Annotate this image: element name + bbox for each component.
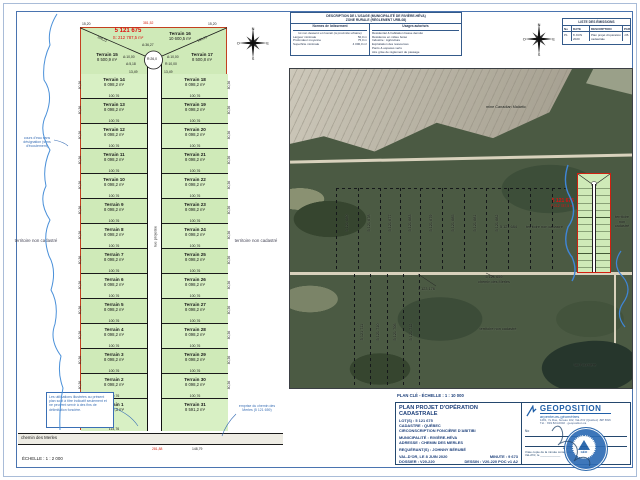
surveyor-stamp: GÉO — [564, 427, 608, 471]
lot-terrain-6: Terrain 68 098,2 m²100,7680,36 — [81, 274, 147, 299]
lot-depth-dim: 80,36 — [227, 374, 231, 396]
lot-area: 8 098,2 m² — [162, 132, 228, 137]
lot-terrain-12: Terrain 128 098,2 m²100,7680,36 — [81, 124, 147, 149]
map-lot-label: 5 121 680 — [345, 209, 349, 237]
revision-header-cell: DATE — [571, 26, 589, 31]
map-lot-label: 5 121 681 — [473, 209, 477, 237]
road-label: chemin des Merles — [21, 435, 57, 440]
map-road-label: 5 121 659 chemin des Merles — [466, 275, 522, 284]
svg-text:S: S — [538, 53, 541, 56]
map-main-lot-label: 5 121 675 S:212 787,5 m² — [534, 198, 574, 208]
cadastral-line-vertical — [400, 188, 401, 272]
dim-arc-left: A:10,00 — [123, 55, 135, 59]
territory-label-left: territoire non cadastré — [8, 238, 64, 243]
cadastral-line-vertical — [387, 274, 388, 389]
plan-note-box: Les utilisations illustrées au présent p… — [46, 392, 114, 428]
lot-width-dim: 100,76 — [162, 219, 228, 223]
lot-terrain-10: Terrain 108 098,2 m²100,7680,36 — [81, 174, 147, 199]
lot-width-dim: 100,76 — [81, 369, 147, 373]
lot-depth-dim: 80,36 — [78, 249, 82, 271]
lot-name: Terrain 29 — [162, 349, 228, 357]
lot-name: Terrain 12 — [81, 124, 147, 132]
title-block: PLAN PROJET D'OPÉRATION CADASTRALE LOT(S… — [395, 402, 631, 465]
lot-area: 8 098,2 m² — [162, 182, 228, 187]
lot-name: Terrain 24 — [162, 224, 228, 232]
cadastral-plan-sheet: territoire non cadastré territoire non c… — [0, 0, 640, 480]
lot-area: 8 591,2 m² — [162, 407, 228, 412]
lot-area: 8 098,2 m² — [162, 332, 228, 337]
lot-width-dim: 100,76 — [162, 169, 228, 173]
lot-name: Terrain 20 — [162, 124, 228, 132]
projected-street: rue projetée — [147, 64, 162, 431]
stamp-triangle-icon — [578, 440, 590, 450]
cadastral-line-horizontal — [336, 188, 566, 189]
revision-headers: NoDATEDESCRIPTIONPAR — [563, 26, 630, 31]
title-block-firm: GEOPOSITION arpenteurs-géomètres 1281, 7… — [522, 403, 630, 464]
map-lot-176: 5 123 176 — [418, 287, 435, 291]
dim-arc-right: A:10,00 — [167, 55, 179, 59]
lot-terrain-27: Terrain 278 098,2 m²100,7680,36 — [162, 299, 228, 324]
lot-name: Terrain 19 — [162, 99, 228, 107]
cadastral-line-vertical — [486, 188, 487, 272]
lot-width-dim: 100,76 — [162, 319, 228, 323]
map-mine-label: mine Canadian Malartic — [486, 105, 526, 109]
lot-name: Terrain 7 — [81, 249, 147, 257]
cadastral-line-vertical — [358, 188, 359, 272]
scale-label-left: ÉCHELLE : 1 : 2 000 — [22, 456, 63, 461]
firm-address-2: Tél. : 819 824-0002 · geoposition.ca — [540, 422, 611, 425]
svg-text:N: N — [538, 23, 541, 27]
zoning-usage-row: Aire grise de règlement de passage — [372, 51, 459, 55]
dim-arc-top: A:36,27 — [142, 43, 154, 47]
lot-depth-dim: 80,36 — [78, 274, 82, 296]
lot-terrain-16: Terrain 16 10 600,5 m² — [159, 31, 201, 41]
zoning-col-usages: Usages autorisés Résidentiel & habitatio… — [369, 24, 461, 56]
revision-cell: 8 JUIN 2020 — [571, 32, 589, 41]
lot-width-dim: 100,76 — [162, 94, 228, 98]
lot-terrain-23: Terrain 238 098,2 m²100,7680,36 — [162, 199, 228, 224]
cadastral-line-vertical — [464, 188, 465, 272]
lot-terrain-18: Terrain 188 098,2 m²100,7680,36 — [162, 74, 228, 99]
lot-area: 8 098,2 m² — [162, 207, 228, 212]
map-lot-label: 5 121 677 — [388, 209, 392, 237]
lot-depth-dim: 80,36 — [78, 349, 82, 371]
field-adresse: ADRESSE : CHEMIN DES MERLES — [399, 440, 518, 445]
zoning-title: DESCRIPTION DE L'USAGE (MUNICIPALITÉ DE … — [291, 13, 461, 24]
map-lot-label: 5 121 683 — [408, 209, 412, 237]
lot-area: 8 098,2 m² — [81, 182, 147, 187]
lot-width-dim: 100,76 — [162, 244, 228, 248]
subdivision-block: rue projetée 5 121 675 S: 212 787,5 m² T… — [80, 27, 227, 430]
lot-area: 8 098,2 m² — [162, 107, 228, 112]
revision-row: P18 JUIN 2020Plan projet d'opération cad… — [563, 31, 630, 41]
lot-terrain-13: Terrain 138 098,2 m²100,7680,36 — [81, 99, 147, 124]
lot-terrain-20: Terrain 208 098,2 m²100,7680,36 — [162, 124, 228, 149]
lot-width-dim: 100,76 — [81, 244, 147, 248]
territory-label-right: territoire non cadastré — [228, 238, 284, 243]
map-road-upper — [290, 153, 633, 163]
dim-road-red: 281,88 — [152, 447, 162, 451]
field-dessin: DESSIN : V20-220 POC v1 A2 — [464, 459, 517, 464]
revision-header-cell: DESCRIPTION — [589, 26, 622, 31]
cadastral-line-vertical — [354, 274, 355, 389]
lot-depth-dim: 80,36 — [227, 174, 231, 196]
cadastral-line-vertical — [442, 188, 443, 272]
street-label: rue projetée — [153, 214, 158, 260]
road-chemin-des-merles — [18, 433, 283, 445]
map-lot-label: 5 121 682 — [495, 209, 499, 237]
map-territory-right-3: cadastré — [612, 224, 632, 229]
lot-name: Terrain 13 — [81, 99, 147, 107]
lot-depth-dim: 80,36 — [78, 299, 82, 321]
zoning-norm-row: Superficie minimale4 000,0 m² — [293, 43, 367, 47]
lot-depth-dim: 80,36 — [78, 224, 82, 246]
dim-street-right: 13,49 — [164, 70, 173, 74]
lot-terrain-7: Terrain 78 098,2 m²100,7680,36 — [81, 249, 147, 274]
lot-area: 8 098,2 m² — [81, 307, 147, 312]
svg-text:E: E — [266, 42, 269, 46]
lot-depth-dim: 80,36 — [78, 99, 82, 121]
field-dossier: DOSSIER : V20-220 — [399, 459, 435, 464]
lot-width-dim: 100,76 — [81, 219, 147, 223]
map-main-lot-area: S:212 787,5 m² — [534, 204, 574, 208]
lot-name: Terrain 2 — [81, 374, 147, 382]
lot-width-dim: 100,76 — [81, 119, 147, 123]
lot-name: Terrain 18 — [162, 74, 228, 82]
stamp-text: GÉO — [573, 450, 595, 454]
zoning-col1-header: Normes de lotissement — [293, 25, 367, 31]
lot-depth-dim: 80,36 — [78, 324, 82, 346]
revision-cell: Plan projet d'opération cadastrale — [589, 32, 622, 41]
lot-depth-dim: 80,36 — [227, 349, 231, 371]
revision-cell: P1 — [563, 32, 571, 41]
zoning-norm-label: Superficie minimale — [293, 43, 319, 47]
lot-depth-dim: 80,36 — [227, 99, 231, 121]
lot-depth-dim: 80,36 — [227, 249, 231, 271]
zoning-col-norms: Normes de lotissement lot non desservi e… — [291, 24, 369, 56]
lot-depth-dim: 80,36 — [78, 124, 82, 146]
lot-terrain-26: Terrain 268 098,2 m²100,7680,36 — [162, 274, 228, 299]
lot-name: Terrain 26 — [162, 274, 228, 282]
map-lot-label: 5 121 710 — [376, 318, 380, 346]
document-title: PLAN PROJET D'OPÉRATION CADASTRALE — [399, 405, 518, 418]
dim-seg-left: A:5,18 — [126, 62, 136, 66]
lot-depth-dim: 80,36 — [227, 224, 231, 246]
lot-name: Terrain 25 — [162, 249, 228, 257]
lot-depth-dim: 80,36 — [78, 199, 82, 221]
plan-cle-label: PLAN CLÉ - ÉCHELLE : 1 : 10 000 — [397, 393, 464, 398]
lot-width-dim: 100,76 — [81, 344, 147, 348]
lot-terrain-28: Terrain 288 098,2 m²100,7680,36 — [162, 324, 228, 349]
lot-name: Terrain 27 — [162, 299, 228, 307]
lot-terrain-11: Terrain 118 098,2 m²100,7680,36 — [81, 149, 147, 174]
lot-area: 8 098,2 m² — [81, 132, 147, 137]
lot-width-dim: 100,76 — [162, 194, 228, 198]
field-requerant: REQUÉRANT(S) : JOHNNY BÉRUBÉ — [399, 447, 518, 452]
map-territory-mid: territoire non cadastré — [526, 225, 563, 229]
revision-header-cell: PAR — [622, 26, 630, 31]
lot-area: 8 098,2 m² — [81, 257, 147, 262]
lot-name: Terrain 31 — [162, 399, 228, 407]
map-lot-label: 5 121 685 — [451, 209, 455, 237]
lot-depth-dim: 80,36 — [227, 324, 231, 346]
lot-area: 8 500,8 m² — [178, 57, 226, 62]
lot-name: Terrain 14 — [81, 74, 147, 82]
lot-depth-dim: 80,36 — [227, 274, 231, 296]
lot-depth-dim: 80,36 — [227, 299, 231, 321]
lot-width-dim: 100,76 — [81, 194, 147, 198]
lot-width-dim: 100,76 — [81, 319, 147, 323]
lake-area — [539, 335, 633, 389]
map-lot-label: 5 121 712 — [409, 318, 413, 346]
lot-terrain-24: Terrain 248 098,2 m²100,7680,36 — [162, 224, 228, 249]
lot-width-dim: 100,76 — [81, 294, 147, 298]
main-lot-label: 5 121 675 S: 212 787,5 m² — [103, 28, 153, 40]
lot-width-dim: 100,76 — [81, 269, 147, 273]
dim-seg-right: R:10,00 — [165, 62, 177, 66]
title-block-info: PLAN PROJET D'OPÉRATION CADASTRALE LOT(S… — [396, 403, 522, 464]
map-lot-label: 5 121 706 — [393, 318, 397, 346]
cadastral-line-vertical — [380, 188, 381, 272]
main-lot-area: S: 212 787,5 m² — [103, 35, 153, 40]
map-territory-bottom: territoire non cadastré — [458, 327, 538, 331]
lot-terrain-9: Terrain 98 098,2 m²100,7680,36 — [81, 199, 147, 224]
dim-top-total: 381,52 — [143, 21, 153, 25]
lot-depth-dim: 80,36 — [78, 149, 82, 171]
dim-culdesac-radius: R:26,0 — [147, 57, 157, 61]
lot-width-dim: 100,76 — [81, 169, 147, 173]
lot-name: Terrain 4 — [81, 324, 147, 332]
dim-top-corner-right: 15,20 — [208, 22, 217, 26]
lot-area: 8 098,2 m² — [81, 232, 147, 237]
svg-text:N: N — [252, 27, 255, 31]
lot-width-dim: 100,76 — [81, 144, 147, 148]
lot-area: 8 098,2 m² — [162, 157, 228, 162]
lot-area: 8 098,2 m² — [162, 257, 228, 262]
key-map-panel: mine Canadian Malartic 5 121 684 territo… — [289, 68, 633, 389]
revision-table: LISTE DES ÉMISSIONS NoDATEDESCRIPTIONPAR… — [562, 18, 631, 45]
lot-width-dim: 100,76 — [162, 144, 228, 148]
lot-name: Terrain 28 — [162, 324, 228, 332]
lot-terrain-3: Terrain 38 098,2 m²100,7680,36 — [81, 349, 147, 374]
zoning-col2-header: Usages autorisés — [372, 25, 459, 31]
cadastral-line-vertical — [420, 188, 421, 272]
lot-area: 8 098,2 m² — [81, 107, 147, 112]
zoning-title-2: ZONE RURALE (RÈGLEMENT URB-08) — [291, 18, 461, 22]
lot-depth-dim: 80,36 — [227, 199, 231, 221]
map-lot-label: 5 121 679 — [429, 209, 433, 237]
lot-width-dim: 100,76 — [162, 394, 228, 398]
no-label: No — [525, 429, 529, 433]
map-lot-label: 5 121 711 — [360, 318, 364, 346]
stream-note: cours d'eau sans désignation (sens d'éco… — [20, 136, 54, 149]
lot-terrain-25: Terrain 258 098,2 m²100,7680,36 — [162, 249, 228, 274]
lot-terrain-4: Terrain 48 098,2 m²100,7680,36 — [81, 324, 147, 349]
lot-name: Terrain 30 — [162, 374, 228, 382]
lot-area: 8 098,2 m² — [81, 332, 147, 337]
lot-terrain-5: Terrain 58 098,2 m²100,7680,36 — [81, 299, 147, 324]
lot-width-dim: 100,76 — [162, 294, 228, 298]
lot-terrain-19: Terrain 198 098,2 m²100,7680,36 — [162, 99, 228, 124]
cadastral-line-vertical — [336, 188, 337, 272]
cadastral-line-vertical — [552, 188, 553, 272]
lot-width-dim: 100,76 — [162, 369, 228, 373]
dim-top-corner-left: 15,20 — [82, 22, 91, 26]
lot-terrain-31: Terrain 31 8 591,2 m² — [162, 399, 228, 431]
revision-header-cell: No — [563, 26, 571, 31]
lot-terrain-14: Terrain 148 098,2 m²100,7680,36 — [81, 74, 147, 99]
lot-width-dim: 100,76 — [162, 269, 228, 273]
map-territory-right: territoire non cadastré — [612, 215, 632, 229]
lot-terrain-29: Terrain 298 098,2 m²100,7680,36 — [162, 349, 228, 374]
lot-terrain-8: Terrain 88 098,2 m²100,7680,36 — [81, 224, 147, 249]
lot-area: 8 098,2 m² — [162, 232, 228, 237]
lot-name: Terrain 10 — [81, 174, 147, 182]
svg-text:S: S — [252, 57, 255, 60]
cadastral-line-vertical — [403, 274, 404, 389]
lot-depth-dim: 80,36 — [227, 149, 231, 171]
lot-depth-dim: 80,36 — [227, 74, 231, 96]
svg-text:E: E — [552, 38, 555, 42]
svg-text:O: O — [237, 42, 240, 46]
cadastral-line-vertical — [370, 274, 371, 389]
compass-rose-icon: N E S O — [236, 26, 270, 60]
compass-rose-icon: N E S O — [522, 22, 556, 56]
road-note: emprise du chemin des Merles (5 121 659) — [236, 404, 278, 412]
lot-name: Terrain 8 — [81, 224, 147, 232]
lot-name: Terrain 6 — [81, 274, 147, 282]
mine-texture — [290, 69, 572, 165]
clearing-area — [586, 69, 633, 95]
lot-terrain-22: Terrain 228 098,2 m²100,7680,36 — [162, 174, 228, 199]
lot-area: 8 098,2 m² — [162, 307, 228, 312]
lot-terrain-17: Terrain 17 8 500,8 m² — [178, 52, 226, 62]
cadastral-line-vertical — [419, 274, 420, 389]
lot-terrain-21: Terrain 218 098,2 m²100,7680,36 — [162, 149, 228, 174]
svg-text:O: O — [523, 38, 526, 42]
lot-depth-dim: 80,36 — [227, 124, 231, 146]
copy-place: Val-d'Or, le — [525, 453, 540, 457]
lot-area: 8 098,2 m² — [81, 282, 147, 287]
map-inset-subdivision — [577, 173, 611, 273]
map-road-name: chemin des Merles — [466, 280, 522, 285]
cadastral-line-vertical — [530, 188, 531, 272]
lot-area: 10 600,5 m² — [159, 36, 201, 41]
lot-name: Terrain 23 — [162, 199, 228, 207]
map-lake-label: lac Fournière — [574, 363, 596, 367]
lot-area: 8 098,2 m² — [81, 207, 147, 212]
lot-width-dim: 100,76 — [162, 344, 228, 348]
lot-area: 8 098,2 m² — [81, 157, 147, 162]
aerial-imagery: mine Canadian Malartic 5 121 684 territo… — [290, 69, 633, 389]
lot-area: 8 098,2 m² — [162, 282, 228, 287]
geoposition-logo-icon — [525, 405, 538, 418]
field-circonscription: CIRCONSCRIPTION FONCIÈRE D'ABITIBI — [399, 428, 518, 433]
lot-name: Terrain 22 — [162, 174, 228, 182]
dim-street-left: 13,49 — [129, 70, 138, 74]
map-lot-label: 5 121 678 — [367, 209, 371, 237]
zoning-norm-value: 4 000,0 m² — [353, 43, 367, 47]
lot-area: 8 098,2 m² — [162, 357, 228, 362]
lot-name: Terrain 11 — [81, 149, 147, 157]
lot-depth-dim: 80,36 — [78, 74, 82, 96]
lot-depth-dim: 80,36 — [78, 174, 82, 196]
dim-road-black: 148,79 — [192, 447, 202, 451]
lot-area: 8 098,2 m² — [162, 382, 228, 387]
lot-area: 8 098,2 m² — [81, 382, 147, 387]
lot-name: Terrain 3 — [81, 349, 147, 357]
lot-name: Terrain 5 — [81, 299, 147, 307]
lot-name: Terrain 21 — [162, 149, 228, 157]
lot-width-dim: 100,76 — [81, 94, 147, 98]
lot-width-dim: 100,76 — [162, 119, 228, 123]
lot-area: 8 098,2 m² — [81, 82, 147, 87]
zoning-table: DESCRIPTION DE L'USAGE (MUNICIPALITÉ DE … — [290, 12, 462, 56]
lot-name: Terrain 9 — [81, 199, 147, 207]
lot-area: 8 098,2 m² — [81, 357, 147, 362]
firm-name: GEOPOSITION — [540, 405, 611, 413]
revision-title: LISTE DES ÉMISSIONS — [563, 19, 630, 26]
cadastral-line-vertical — [508, 188, 509, 272]
lot-area: 8 098,2 m² — [162, 82, 228, 87]
lot-terrain-30: Terrain 308 098,2 m²100,7680,36 — [162, 374, 228, 399]
revision-cell: J.B. — [622, 32, 630, 41]
